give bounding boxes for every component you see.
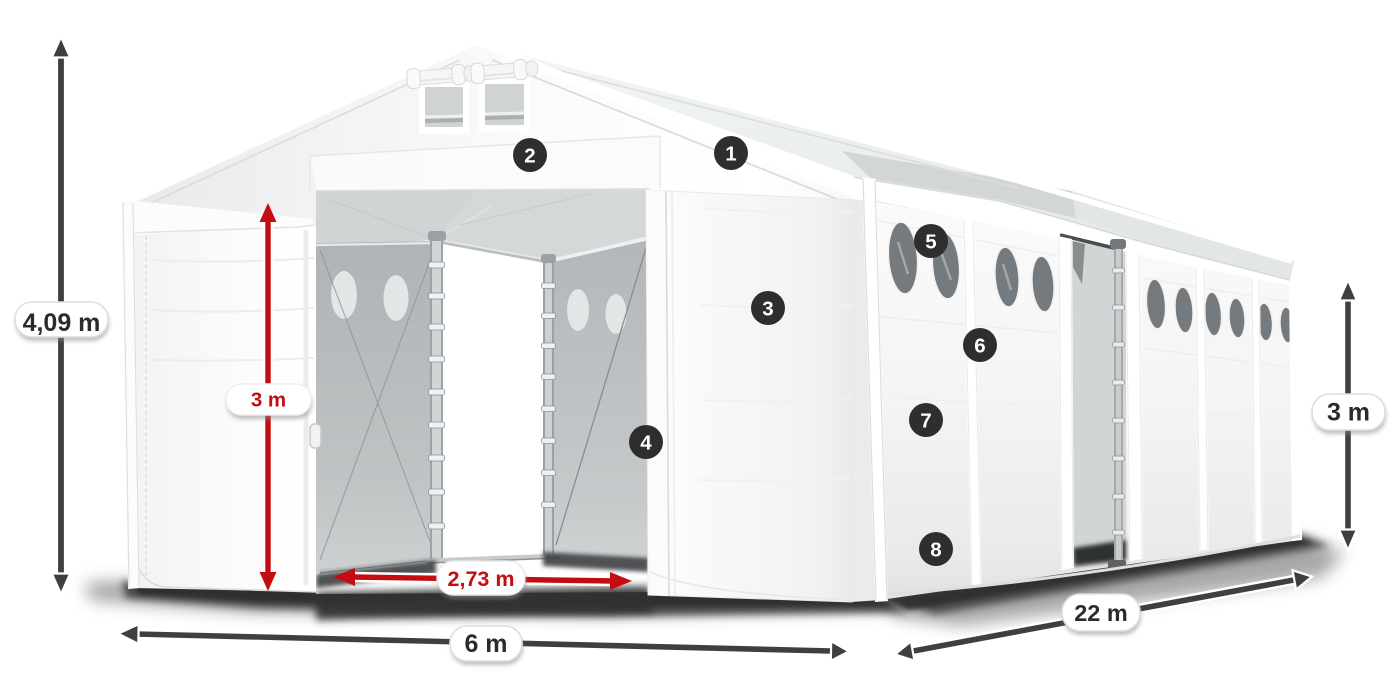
svg-text:5: 5 bbox=[925, 231, 936, 254]
svg-text:4: 4 bbox=[640, 432, 652, 455]
svg-text:3 m: 3 m bbox=[1327, 399, 1370, 427]
svg-text:2: 2 bbox=[524, 145, 535, 168]
svg-text:6: 6 bbox=[974, 335, 985, 358]
svg-text:1: 1 bbox=[725, 143, 736, 166]
svg-text:4,09 m: 4,09 m bbox=[23, 309, 101, 337]
svg-text:7: 7 bbox=[920, 410, 931, 433]
svg-text:22 m: 22 m bbox=[1074, 600, 1128, 626]
svg-text:2,73 m: 2,73 m bbox=[448, 567, 515, 591]
svg-text:3 m: 3 m bbox=[251, 389, 286, 412]
svg-text:8: 8 bbox=[930, 539, 941, 562]
svg-text:3: 3 bbox=[762, 298, 773, 321]
svg-text:6 m: 6 m bbox=[464, 630, 507, 658]
